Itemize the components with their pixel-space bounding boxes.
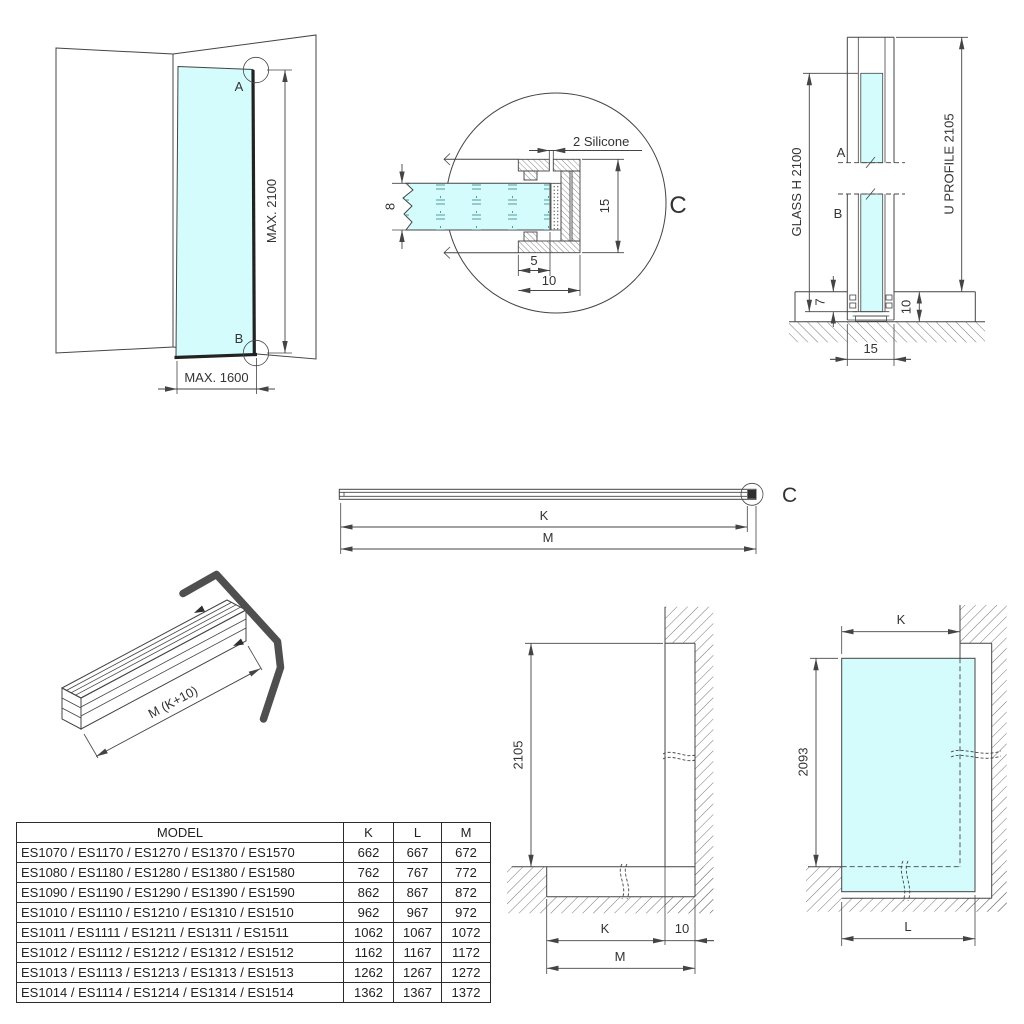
cell-l: 667: [394, 843, 442, 863]
model-table-row: ES1010 / ES1110 / ES1210 / ES1310 / ES15…: [17, 903, 491, 923]
dim-k: K: [897, 612, 906, 627]
dim-offset-10: 10: [675, 921, 689, 936]
cell-k: 962: [344, 903, 394, 923]
model-table-header-row: MODEL K L M: [17, 823, 491, 843]
profile-hatch: [561, 171, 570, 241]
dim-profile-2105: 2105: [511, 741, 526, 770]
cell-k: 1062: [344, 923, 394, 943]
dim-u-profile: U PROFILE 2105: [942, 113, 957, 214]
dim-m: M: [615, 949, 626, 964]
profile-rib: [524, 171, 537, 180]
cell-l: 867: [394, 883, 442, 903]
section-label-b: B: [834, 206, 843, 221]
model-table-body: ES1070 / ES1170 / ES1270 / ES1370 / ES15…: [17, 843, 491, 1003]
wall-left: [56, 48, 173, 353]
cell-k: 1262: [344, 963, 394, 983]
glass-upper: [861, 73, 883, 162]
model-table-row: ES1014 / ES1114 / ES1214 / ES1314 / ES15…: [17, 983, 491, 1003]
glass-panel: [176, 67, 254, 358]
profile-hatch: [572, 171, 580, 241]
cell-model: ES1070 / ES1170 / ES1270 / ES1370 / ES15…: [17, 843, 344, 863]
profile-hatch: [518, 159, 549, 171]
dim-recess-depth: 10: [899, 300, 914, 314]
vertical-profile: [666, 643, 696, 866]
silicone-note: 2 Silicone: [573, 134, 629, 149]
profile-3d-view: M (K+10): [62, 575, 281, 759]
profile-hatch: [518, 241, 580, 253]
vertical-section-view: A B GLASS H 2100 U PROFILE 2105 7 10: [789, 37, 985, 366]
cell-k: 1162: [344, 943, 394, 963]
model-table-row: ES1012 / ES1112 / ES1212 / ES1312 / ES15…: [17, 943, 491, 963]
cell-k: 862: [344, 883, 394, 903]
wall-elevation-view: 2105 K 10 M: [507, 607, 714, 974]
dim-glass-height: GLASS H 2100: [789, 148, 804, 237]
ground-hatch: [789, 322, 985, 343]
section-label-a: A: [837, 145, 846, 160]
profile-foot: [856, 316, 887, 321]
cell-model: ES1012 / ES1112 / ES1212 / ES1312 / ES15…: [17, 943, 344, 963]
cell-m: 1272: [442, 963, 491, 983]
dim-max-height: MAX. 2100: [264, 179, 279, 243]
cell-l: 967: [394, 903, 442, 923]
bottom-profile: [547, 867, 695, 897]
model-table-row: ES1080 / ES1180 / ES1280 / ES1380 / ES15…: [17, 863, 491, 883]
dim-profile-height: 15: [597, 199, 612, 213]
cell-model: ES1013 / ES1113 / ES1213 / ES1313 / ES15…: [17, 963, 344, 983]
dim-profile-width: 10: [542, 273, 556, 288]
cell-m: 672: [442, 843, 491, 863]
cover-cap-profile: [183, 575, 281, 720]
model-table-container: MODEL K L M ES1070 / ES1170 / ES1270 / E…: [16, 822, 491, 1003]
glass-elevation-view: K 2093 L: [796, 605, 1007, 946]
bottom-profile: [842, 892, 992, 899]
dim-m: M: [543, 530, 554, 545]
dim-max-width: MAX. 1600: [184, 370, 248, 385]
column-header-m: M: [442, 823, 491, 843]
silicone-gasket: [551, 183, 561, 230]
cell-model: ES1011 / ES1111 / ES1211 / ES1311 / ES15…: [17, 923, 344, 943]
dim-profile-width-15: 15: [863, 341, 877, 356]
cell-m: 872: [442, 883, 491, 903]
dim-floor-gap: 7: [813, 298, 828, 305]
corner-perspective-view: A B MAX. 2100 MAX. 1600: [56, 35, 316, 394]
profile-hatch: [553, 159, 580, 171]
model-table-row: ES1090 / ES1190 / ES1290 / ES1390 / ES15…: [17, 883, 491, 903]
cell-l: 1267: [394, 963, 442, 983]
label-b: B: [235, 331, 244, 346]
cell-k: 762: [344, 863, 394, 883]
dim-k: K: [601, 921, 610, 936]
glass-panel: [842, 658, 975, 891]
model-table-row: ES1011 / ES1111 / ES1211 / ES1311 / ES15…: [17, 923, 491, 943]
cell-model: ES1080 / ES1180 / ES1280 / ES1380 / ES15…: [17, 863, 344, 883]
column-header-model: MODEL: [17, 823, 344, 843]
dim-insert-depth: 5: [530, 253, 537, 268]
profile-bar: [339, 489, 756, 499]
model-table: MODEL K L M ES1070 / ES1170 / ES1270 / E…: [16, 822, 491, 1003]
cell-m: 772: [442, 863, 491, 883]
cell-l: 1367: [394, 983, 442, 1003]
glass-lower: [861, 194, 883, 312]
detail-label-c: C: [669, 192, 686, 219]
cell-l: 1067: [394, 923, 442, 943]
wall-profile-edge: [253, 70, 254, 354]
profile-length-view: C K M: [339, 483, 797, 554]
cell-m: 972: [442, 903, 491, 923]
cell-l: 1167: [394, 943, 442, 963]
cell-model: ES1014 / ES1114 / ES1214 / ES1314 / ES15…: [17, 983, 344, 1003]
dim-glass-thickness: 8: [383, 203, 398, 210]
model-table-row: ES1070 / ES1170 / ES1270 / ES1370 / ES15…: [17, 843, 491, 863]
profile-label-c: C: [782, 484, 797, 507]
cell-l: 767: [394, 863, 442, 883]
technical-drawing-sheet: A B MAX. 2100 MAX. 1600 C: [0, 0, 1024, 1024]
column-header-l: L: [394, 823, 442, 843]
cell-model: ES1090 / ES1190 / ES1290 / ES1390 / ES15…: [17, 883, 344, 903]
cell-m: 1172: [442, 943, 491, 963]
insert-arrow: [194, 606, 205, 614]
profile-end-cap: [747, 490, 756, 499]
dim-l: L: [904, 919, 911, 934]
cell-m: 1372: [442, 983, 491, 1003]
tempered-glass-marks: [403, 183, 550, 230]
label-a: A: [235, 79, 244, 94]
model-table-row: ES1013 / ES1113 / ES1213 / ES1313 / ES15…: [17, 963, 491, 983]
insert-arrow: [233, 639, 244, 647]
detail-c-view: C 2 Silicone 8 15: [383, 93, 687, 313]
cell-model: ES1010 / ES1110 / ES1210 / ES1310 / ES15…: [17, 903, 344, 923]
cell-m: 1072: [442, 923, 491, 943]
dim-glass-2093: 2093: [796, 748, 811, 777]
cell-k: 662: [344, 843, 394, 863]
cell-k: 1362: [344, 983, 394, 1003]
dim-k: K: [540, 508, 549, 523]
column-header-k: K: [344, 823, 394, 843]
profile-rib: [524, 232, 537, 241]
